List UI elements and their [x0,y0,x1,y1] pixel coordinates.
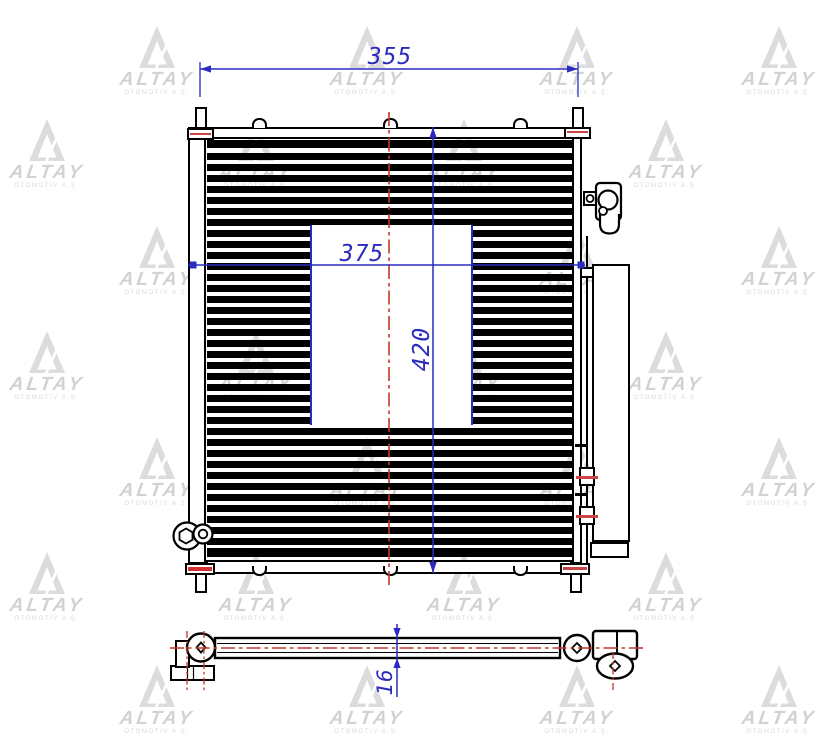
dimension-375: 375 [188,241,585,269]
centerlines [170,112,644,693]
dimension-16: 16 [373,624,401,697]
side-view [171,631,637,680]
dim-355-label: 355 [367,44,413,70]
dimension-355: 355 [200,44,578,97]
drawing-overlay: 355 375 420 16 [0,0,827,745]
side-bracket-foot [171,666,214,680]
dim-375-label: 375 [339,241,385,267]
technical-drawing-canvas: ALTAY OTOMOTİV A.Ş. ALTAY OTOMOTİV A.Ş. … [0,0,827,745]
outlet-flange [174,523,213,550]
dim-16-label: 16 [373,668,397,695]
inlet-fitting [584,183,621,234]
dim-420-label: 420 [409,327,435,372]
dimension-420: 420 [409,127,437,573]
